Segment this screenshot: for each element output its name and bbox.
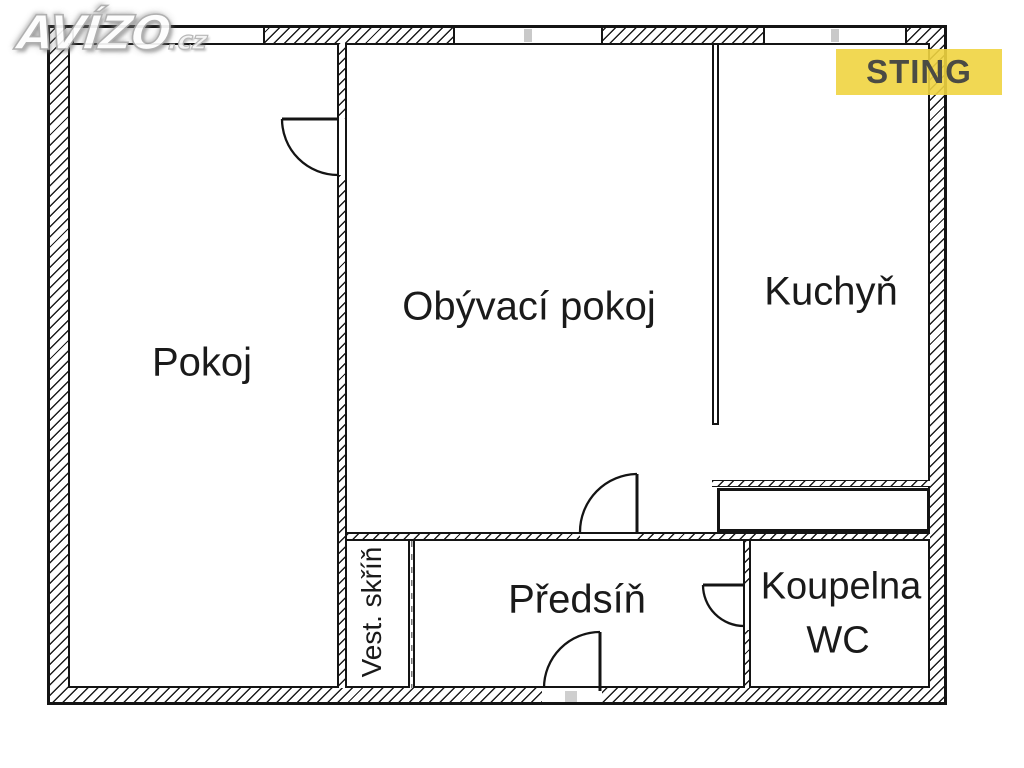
- room-label-vest-skrin: Vest. skříň: [356, 547, 388, 678]
- door-arc-obyvaci: [580, 474, 637, 532]
- room-label-predsin: Předsíň: [508, 578, 646, 623]
- door-arc-entrance: [544, 632, 600, 688]
- room-label-wc: WC: [806, 620, 869, 663]
- room-label-kuchyn: Kuchyň: [764, 270, 897, 315]
- avizo-logo-text: AVÍZO: [15, 6, 172, 61]
- room-label-koupelna: Koupelna: [761, 566, 922, 609]
- avizo-watermark-logo: AVÍZO.cz: [15, 6, 211, 61]
- avizo-logo-tld: .cz: [167, 26, 209, 55]
- room-label-obyvaci-pokoj: Obývací pokoj: [402, 285, 655, 330]
- sting-agency-badge: STING: [836, 49, 1002, 95]
- door-arc-pokoj: [282, 119, 338, 175]
- door-arc-koupelna: [703, 585, 744, 626]
- floorplan-canvas: Pokoj Obývací pokoj Kuchyň Předsíň Koupe…: [0, 0, 1024, 768]
- room-label-pokoj: Pokoj: [152, 341, 252, 386]
